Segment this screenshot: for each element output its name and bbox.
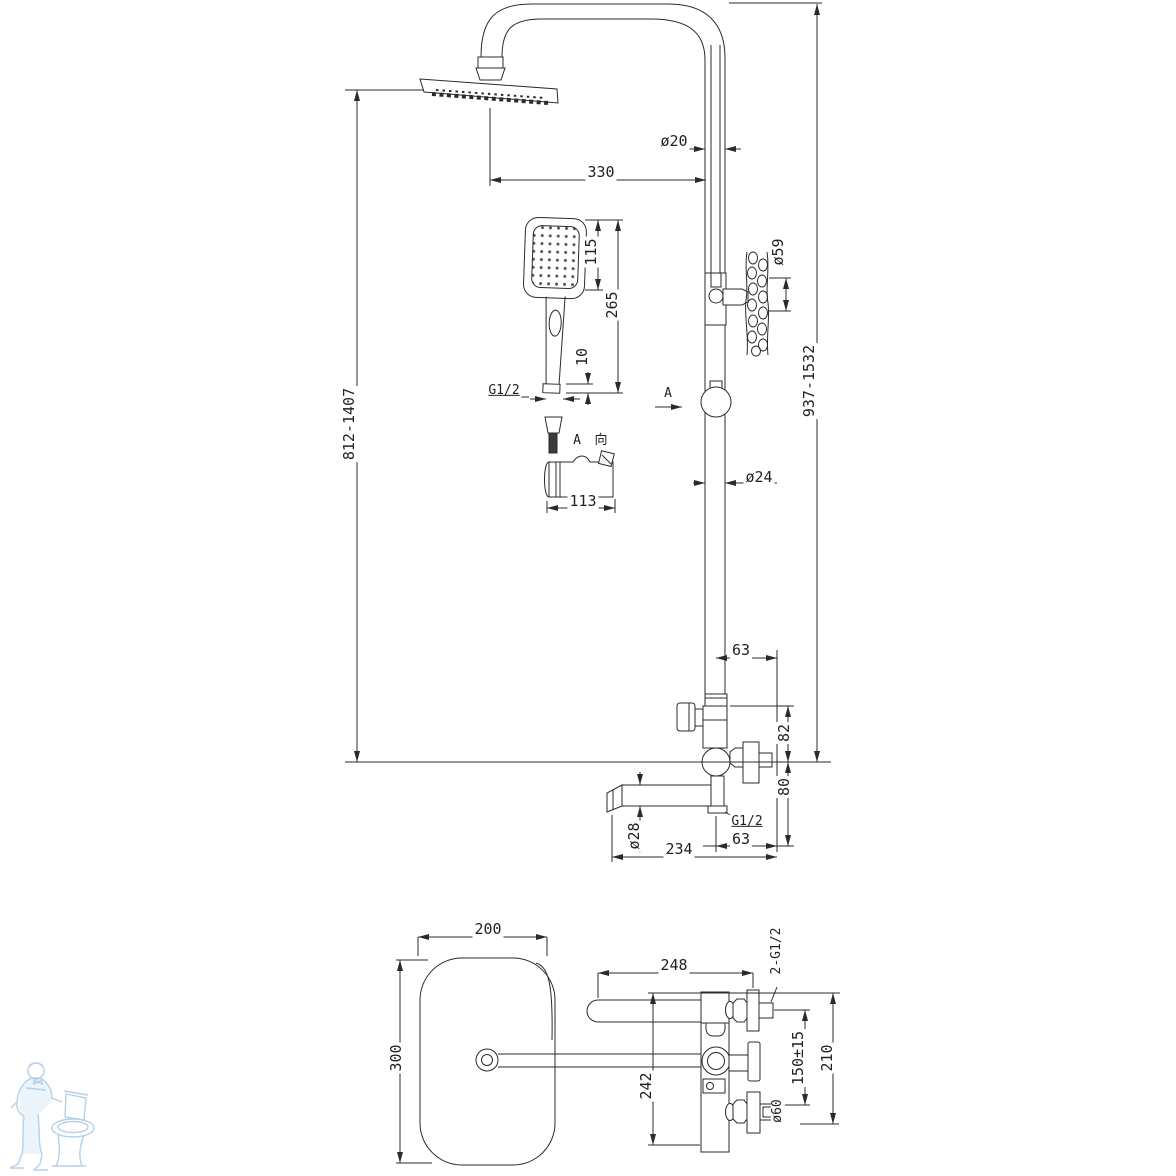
dim-label-82: 82 [776,722,793,744]
view-label-a: A [571,434,583,448]
toilet-icon [52,1091,94,1166]
dim-label-63-top: 63 [730,642,752,659]
mixer-body-front [607,694,772,819]
view-label-xiang: 向 [592,434,609,448]
rain-head-top [420,958,555,1165]
shower-hose [746,252,769,356]
dim-label-113: 113 [567,493,598,510]
dim-label-d60: ø60 [771,1097,785,1124]
spout-top [587,1000,702,1022]
thread-leader [771,987,777,1002]
dim-label-g12-hand: G1/2 [486,384,521,398]
dim-label-d59: ø59 [770,236,787,267]
section-label-a: A [662,387,674,401]
dim-label-63-bot: 63 [730,831,752,848]
technical-drawing-page: 330 ø20 115 265 10 G1/2 ø59 937-1532 812… [0,0,1176,1176]
bath-spout [607,785,712,812]
dim-label-210: 210 [819,1042,836,1073]
dim-label-937-1532: 937-1532 [801,343,818,419]
mixer-handle-top [729,1042,760,1081]
dim-label-80: 80 [776,776,793,798]
dim-label-d20: ø20 [658,133,689,150]
dim-label-265: 265 [604,289,621,320]
dim-label-248: 248 [658,957,689,974]
dim-label-200: 200 [472,921,503,938]
dim-label-d24: ø24 [743,469,774,486]
plumber-watermark [10,1063,94,1170]
dim-label-812-1407: 812-1407 [341,386,358,462]
dim-label-300: 300 [388,1042,405,1073]
hose-end-fitting [545,417,562,453]
dim-label-330: 330 [585,164,616,181]
rain-shower-head [420,57,558,103]
dim-label-2-g12: 2-G1/2 [770,926,784,977]
dim-label-g12-spout: G1/2 [729,815,764,829]
dim-label-10: 10 [574,346,591,368]
wall-connection-bottom [726,1092,777,1133]
front-dimensions [345,3,831,862]
front-view [345,3,831,862]
hose-outlet-bracket [705,273,748,325]
mixer-body-top [701,990,776,1152]
diverter-knob [677,703,695,731]
dim-label-150-15: 150±15 [790,1029,807,1087]
dim-label-d28: ø28 [626,820,643,851]
shower-column [481,4,725,694]
dim-label-115: 115 [583,236,600,267]
dim-label-242: 242 [638,1070,655,1101]
wall-connection-top [726,990,774,1031]
dim-label-234: 234 [663,841,694,858]
hose-outlet-knob [709,289,723,303]
